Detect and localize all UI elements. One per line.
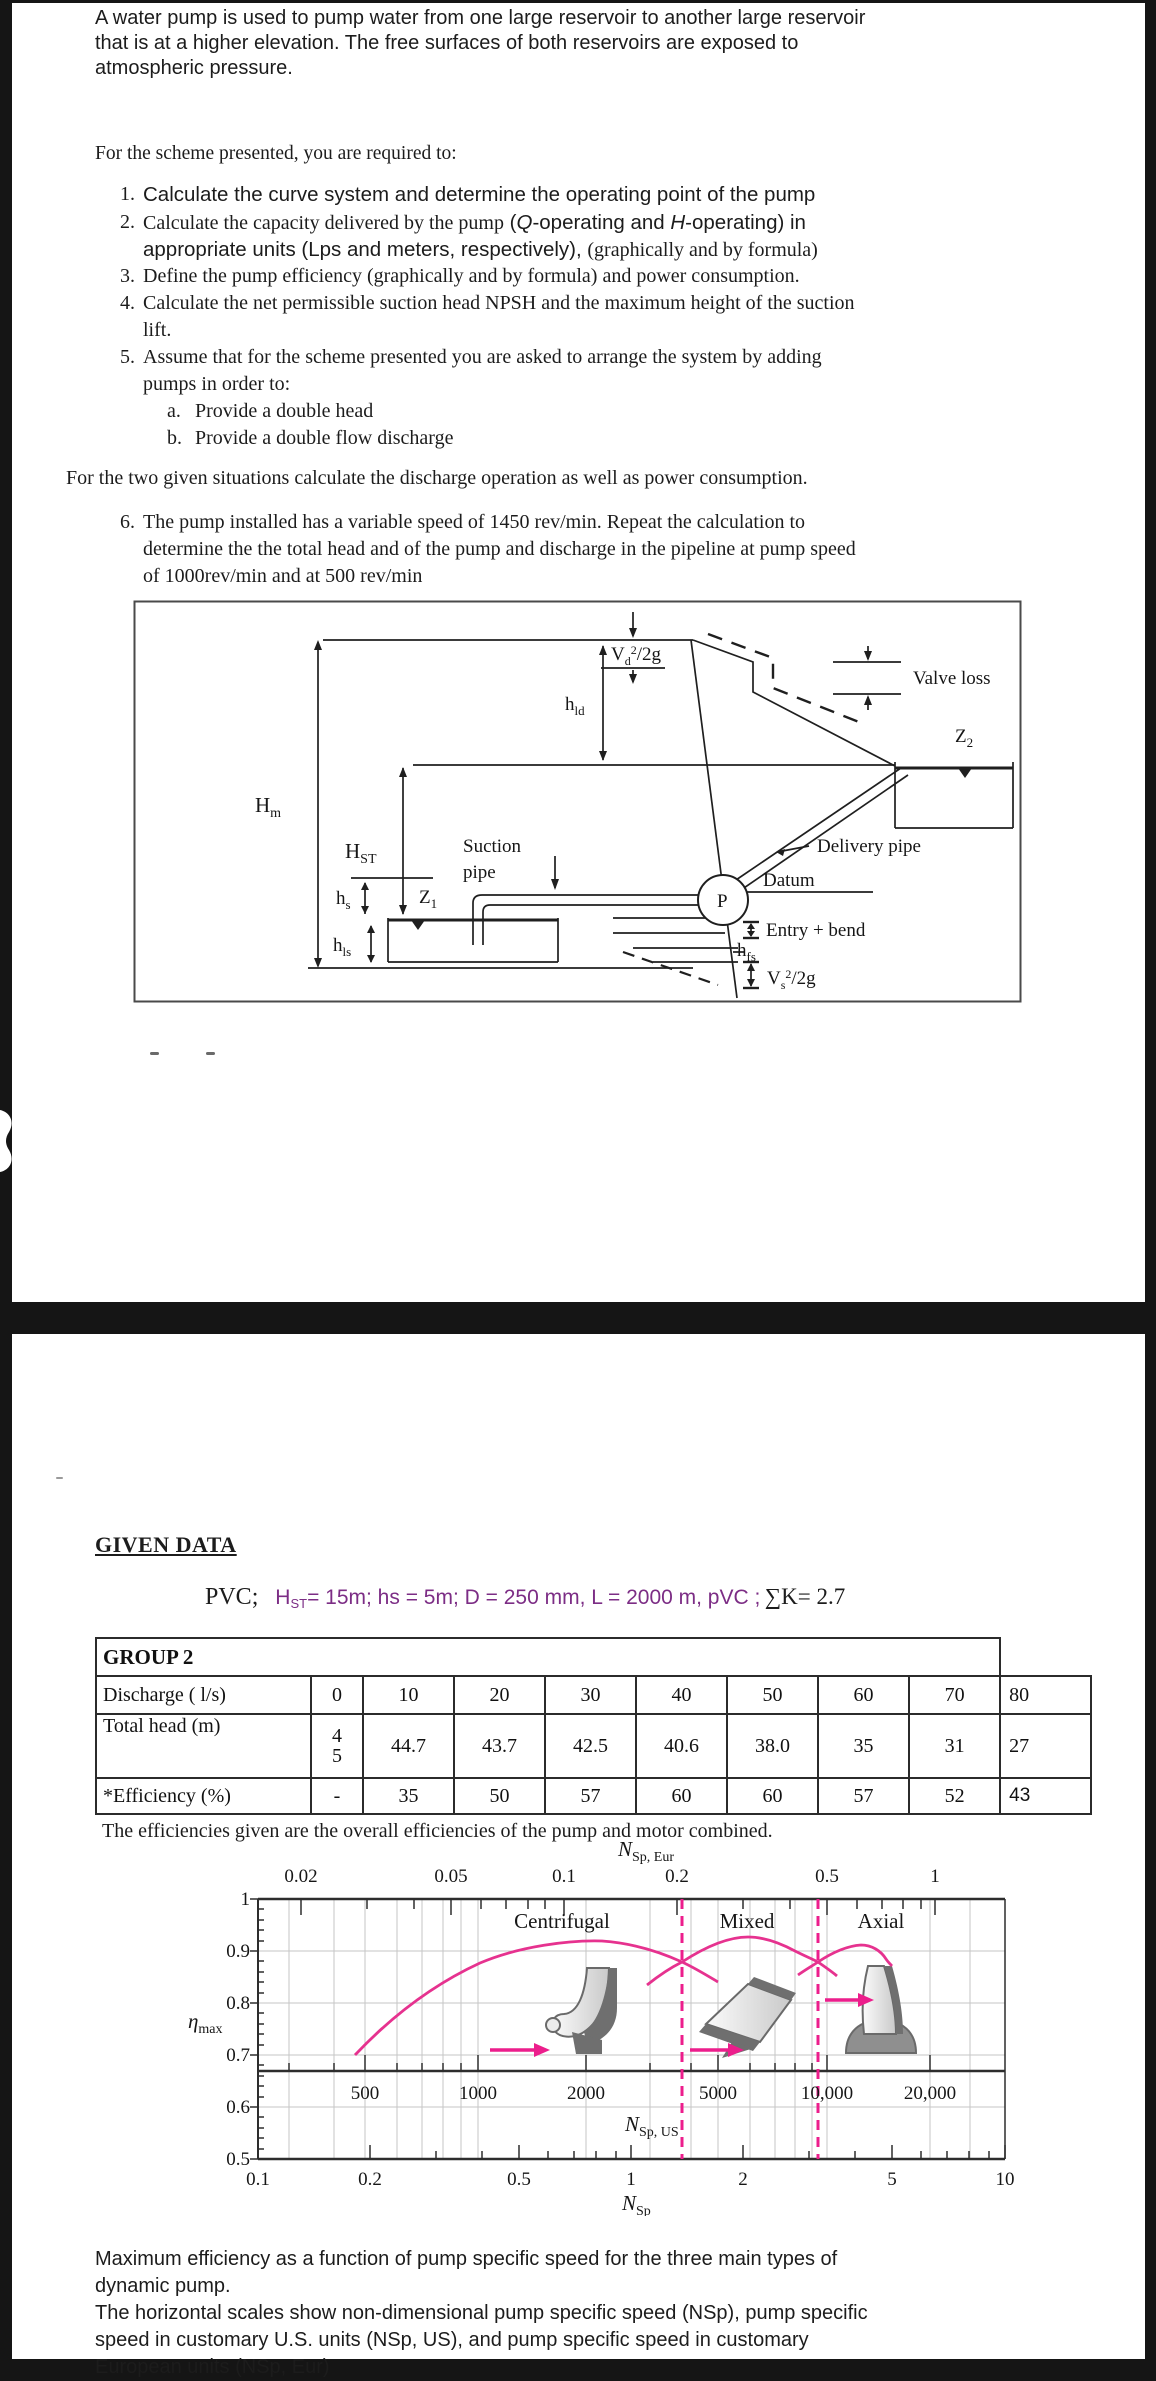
row-label: Discharge ( l/s) (96, 1676, 311, 1714)
table-cell: 27 (1000, 1714, 1091, 1778)
list-item-5a: Provide a double head (195, 400, 373, 423)
table-cell: - (311, 1778, 363, 1814)
y-axis-title-eta-max: ηmax (188, 2009, 223, 2037)
table-cell: 50 (454, 1778, 545, 1814)
list-marker: 4. (120, 292, 135, 315)
list-item-4-line-2: lift. (143, 319, 171, 342)
list-marker: b. (167, 427, 182, 450)
region-label-axial: Axial (858, 1909, 905, 1933)
axial-impeller-icon (846, 1966, 916, 2053)
efficiency-chart: NSp, Eur 0.02 0.05 0.1 0.2 0.5 1 Centrif… (150, 1836, 1030, 2216)
item-2-seg: Q (517, 211, 533, 234)
us-tick-label: 5000 (699, 2083, 737, 2104)
between-paragraph: For the two given situations calculate t… (66, 467, 808, 490)
efficiency-curves (355, 1937, 892, 2055)
item-2-seg: appropriate units (Lps and meters, respe… (143, 238, 587, 261)
pvc-values: = 15m; hs = 5m; D = 250 mm, L = 2000 m, … (307, 1586, 760, 1609)
scan-artifact-dash (206, 1052, 215, 1055)
table-cell: 57 (818, 1778, 909, 1814)
table-cell: 43 (1000, 1778, 1091, 1814)
label-vd2-2g: Vd2/2g (611, 643, 662, 668)
caption-line: The horizontal scales show non-dimension… (95, 2300, 1085, 2327)
label-pump-p: P (717, 891, 728, 912)
eur-tick-label: 1 (930, 1866, 940, 1887)
nsp-tick-label: 10 (996, 2169, 1015, 2190)
list-marker: a. (167, 400, 181, 423)
eta-tick-label: 0.8 (226, 1993, 250, 2014)
given-data-heading: GIVEN DATA (95, 1532, 237, 1558)
left-black-bar (0, 0, 12, 2359)
list-marker: 5. (120, 346, 135, 369)
table-ghost-cell (1000, 1638, 1091, 1676)
page-separator (0, 1302, 1156, 1334)
pvc-sum-k: ∑K= 2.7 (765, 1584, 845, 1609)
table-cell: 43.7 (454, 1714, 545, 1778)
eur-tick-label: 0.02 (284, 1866, 317, 1887)
table-cell: 44.7 (363, 1714, 454, 1778)
pvc-data-line: PVC; HST= 15m; hs = 5m; D = 250 mm, L = … (205, 1584, 845, 1611)
table-cell: 52 (909, 1778, 1000, 1814)
label-entry-bend: Entry + bend (766, 920, 866, 941)
row-label: Total head (m) (96, 1714, 311, 1778)
stacked-digit: 5 (312, 1746, 362, 1766)
eta-tick-label: 0.6 (226, 2097, 250, 2118)
item-2-seg: Calculate the capacity delivered by the … (143, 212, 504, 234)
caption-line-clipped: European units (NSp, Eur) (95, 2354, 1085, 2381)
stacked-digit: 4 (312, 1726, 362, 1746)
table-cell: 35 (363, 1778, 454, 1814)
eur-axis-title: NSp, Eur (617, 1837, 674, 1865)
us-tick-label: 10,000 (801, 2083, 853, 2104)
pump-scheme-diagram: Hm HST hld Vd2/2g Valve loss Z2 Suction … (133, 600, 1022, 1003)
pvc-h-symbol: H (275, 1586, 290, 1609)
viewer-background: { "page1": { "para1": { "l1": "A water p… (0, 0, 1156, 2359)
table-cell: 50 (727, 1676, 818, 1714)
table-row: GROUP 2 (96, 1638, 1091, 1676)
list-item-5-line-2: pumps in order to: (143, 373, 290, 396)
table-cell: 57 (545, 1778, 636, 1814)
nsp-tick-label: 0.5 (507, 2169, 531, 2190)
table-row: *Efficiency (%) - 35 50 57 60 60 57 52 4… (96, 1778, 1091, 1814)
document-page-1: A water pump is used to pump water from … (12, 3, 1145, 1302)
list-marker: 3. (120, 265, 135, 288)
table-cell: 60 (818, 1676, 909, 1714)
item-2-seg: -operating) in (685, 211, 806, 234)
list-item-4-line-1: Calculate the net permissible suction he… (143, 292, 855, 315)
group-2-table: GROUP 2 Discharge ( l/s) 0 10 20 30 40 5… (95, 1637, 1092, 1815)
caption-line: Maximum efficiency as a function of pump… (95, 2246, 1085, 2273)
item-2-seg: (graphically and by formula) (587, 239, 817, 261)
table-row: Discharge ( l/s) 0 10 20 30 40 50 60 70 … (96, 1676, 1091, 1714)
label-suction-pipe-1: Suction (463, 836, 522, 857)
nsp-tick-label: 1 (626, 2169, 636, 2190)
table-cell: 35 (818, 1714, 909, 1778)
list-item-1: Calculate the curve system and determine… (143, 183, 815, 207)
table-cell: 10 (363, 1676, 454, 1714)
list-item-3: Define the pump efficiency (graphically … (143, 265, 800, 288)
pvc-prefix: PVC; (205, 1584, 258, 1610)
label-suction-pipe-2: pipe (463, 862, 496, 883)
scan-artifact-dash (56, 1477, 63, 1479)
us-tick-label: 1000 (459, 2083, 497, 2104)
left-bar-notch (0, 1108, 18, 1178)
table-cell: 38.0 (727, 1714, 818, 1778)
document-page-2: GIVEN DATA PVC; HST= 15m; hs = 5m; D = 2… (12, 1334, 1145, 2359)
nsp-tick-label: 0.2 (358, 2169, 382, 2190)
scan-artifact-dash (150, 1052, 159, 1055)
table-cell: 42.5 (545, 1714, 636, 1778)
item-2-seg: H (670, 211, 685, 234)
label-valve-loss: Valve loss (913, 668, 991, 689)
list-item-6-line-2: determine the the total head and of the … (143, 538, 856, 561)
paragraph-line: that is at a higher elevation. The free … (95, 32, 798, 55)
list-item-6-line-3: of 1000rev/min and at 500 rev/min (143, 565, 422, 588)
caption-line: speed in customary U.S. units (NSp, US),… (95, 2327, 1085, 2354)
right-black-bar (1145, 0, 1156, 2359)
table-cell: 0 (311, 1676, 363, 1714)
us-tick-label: 20,000 (904, 2083, 956, 2104)
us-axis-title: NSp, US (624, 2112, 679, 2140)
list-marker: 1. (120, 183, 135, 206)
table-cell: 70 (909, 1676, 1000, 1714)
nsp-tick-label: 2 (738, 2169, 748, 2190)
table-cell: 45 (311, 1714, 363, 1778)
table-row: Total head (m) 45 44.7 43.7 42.5 40.6 38… (96, 1714, 1091, 1778)
mixed-curve (647, 1937, 837, 1985)
table-cell: 60 (727, 1778, 818, 1814)
table-title-cell: GROUP 2 (96, 1638, 1000, 1676)
nsp-axis-title: NSp (621, 2191, 651, 2216)
region-label-mixed: Mixed (720, 1909, 775, 1933)
nsp-tick-label: 0.1 (246, 2169, 270, 2190)
pvc-h-subscript: ST (290, 1596, 307, 1611)
caption-line: dynamic pump. (95, 2273, 1085, 2300)
eta-tick-label: 0.5 (226, 2149, 250, 2170)
label-datum: Datum (763, 870, 815, 891)
list-item-6-line-1: The pump installed has a variable speed … (143, 511, 805, 534)
table-cell: 20 (454, 1676, 545, 1714)
us-tick-label: 500 (351, 2083, 380, 2104)
us-tick-label: 2000 (567, 2083, 605, 2104)
list-marker: 6. (120, 511, 135, 534)
intro-line: For the scheme presented, you are requir… (95, 143, 457, 165)
eur-tick-label: 0.05 (434, 1866, 467, 1887)
eur-tick-label: 0.2 (665, 1866, 689, 1887)
table-cell: 31 (909, 1714, 1000, 1778)
centrifugal-impeller-icon (546, 1968, 617, 2054)
eta-tick-label: 0.9 (226, 1941, 250, 1962)
list-item-2-line-1: Calculate the capacity delivered by the … (143, 211, 806, 235)
table-cell: 80 (1000, 1676, 1091, 1714)
paragraph-line: atmospheric pressure. (95, 57, 293, 80)
list-item-5b: Provide a double flow discharge (195, 427, 453, 450)
table-cell: 60 (636, 1778, 727, 1814)
list-item-5-line-1: Assume that for the scheme presented you… (143, 346, 822, 369)
eta-tick-label: 0.7 (226, 2045, 250, 2066)
region-label-centrifugal: Centrifugal (514, 1909, 610, 1933)
eur-tick-label: 0.5 (815, 1866, 839, 1887)
label-vs2-2g: Vs2/2g (767, 967, 816, 992)
list-item-2-line-2: appropriate units (Lps and meters, respe… (143, 238, 818, 262)
eur-tick-label: 0.1 (552, 1866, 576, 1887)
row-label: *Efficiency (%) (96, 1778, 311, 1814)
centrifugal-curve (355, 1941, 718, 2055)
eta-tick-label: 1 (241, 1889, 251, 1910)
list-marker: 2. (120, 211, 135, 234)
mixed-flow-impeller-icon (699, 1977, 796, 2058)
item-2-seg: -operating and (532, 211, 670, 234)
table-cell: 40 (636, 1676, 727, 1714)
table-cell: 30 (545, 1676, 636, 1714)
label-delivery-pipe: Delivery pipe (817, 836, 921, 857)
paragraph-line: A water pump is used to pump water from … (95, 7, 865, 30)
nsp-tick-label: 5 (887, 2169, 897, 2190)
figure-caption: Maximum efficiency as a function of pump… (95, 2246, 1085, 2381)
item-2-seg: ( (504, 211, 517, 234)
table-cell: 40.6 (636, 1714, 727, 1778)
